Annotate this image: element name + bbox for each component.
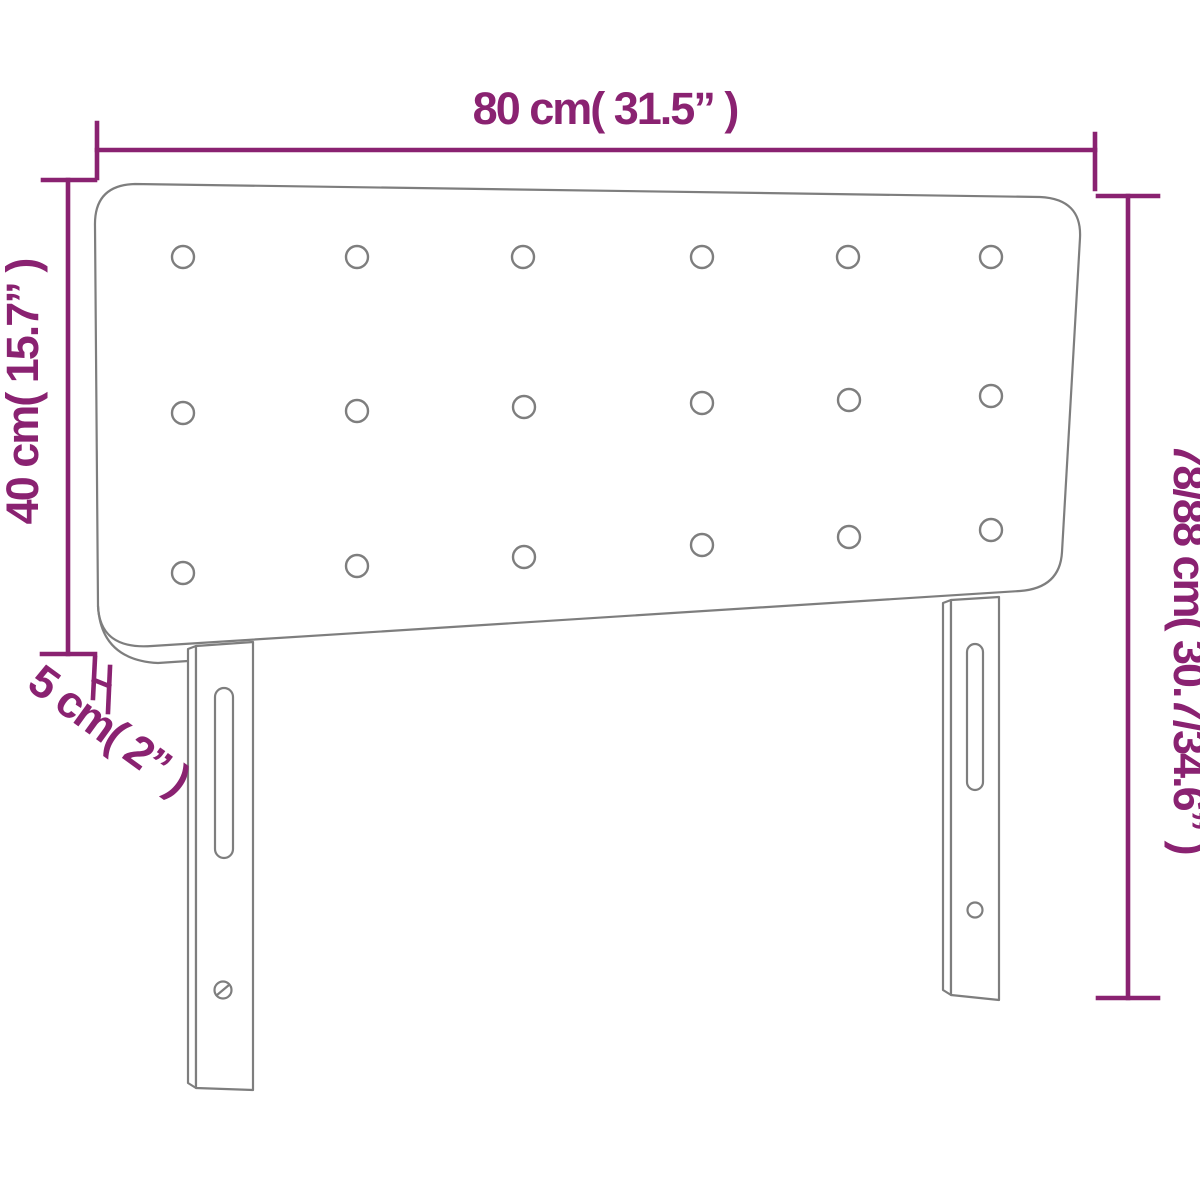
button-tuft	[346, 555, 368, 577]
button-tuft	[346, 400, 368, 422]
headboard-dimension-diagram: 80 cm( 31.5” ) 40 cm( 15.7” ) 78/88 cm( …	[0, 0, 1200, 1200]
button-tuft	[838, 389, 860, 411]
right-leg-front-face	[951, 597, 999, 1000]
button-tuft	[691, 534, 713, 556]
button-tuft	[346, 246, 368, 268]
button-tuft	[512, 246, 534, 268]
diagram-canvas: 80 cm( 31.5” ) 40 cm( 15.7” ) 78/88 cm( …	[0, 0, 1200, 1200]
button-tuft	[691, 392, 713, 414]
button-tuft	[980, 519, 1002, 541]
button-tuft	[513, 396, 535, 418]
button-tuft	[980, 385, 1002, 407]
left-leg-front-face	[196, 642, 253, 1090]
button-tuft	[172, 402, 194, 424]
button-tuft	[691, 246, 713, 268]
button-tuft	[838, 526, 860, 548]
button-tuft	[513, 546, 535, 568]
panel-height-dimension-line	[42, 180, 95, 654]
button-tuft	[837, 246, 859, 268]
left-leg	[188, 642, 253, 1090]
total-height-label: 78/88 cm( 30.7/34.6” )	[1164, 442, 1200, 853]
width-label: 80 cm( 31.5” )	[473, 83, 738, 134]
button-tuft	[980, 246, 1002, 268]
headboard-panel-outline	[95, 184, 1080, 646]
right-leg-side-face	[943, 600, 951, 995]
total-height-dimension-line	[1098, 196, 1158, 998]
left-leg-side-face	[188, 646, 196, 1088]
right-leg	[943, 597, 999, 1000]
panel-height-label: 40 cm( 15.7” )	[0, 260, 48, 525]
button-tuft	[172, 562, 194, 584]
headboard-panel	[95, 184, 1080, 663]
button-tuft	[172, 246, 194, 268]
